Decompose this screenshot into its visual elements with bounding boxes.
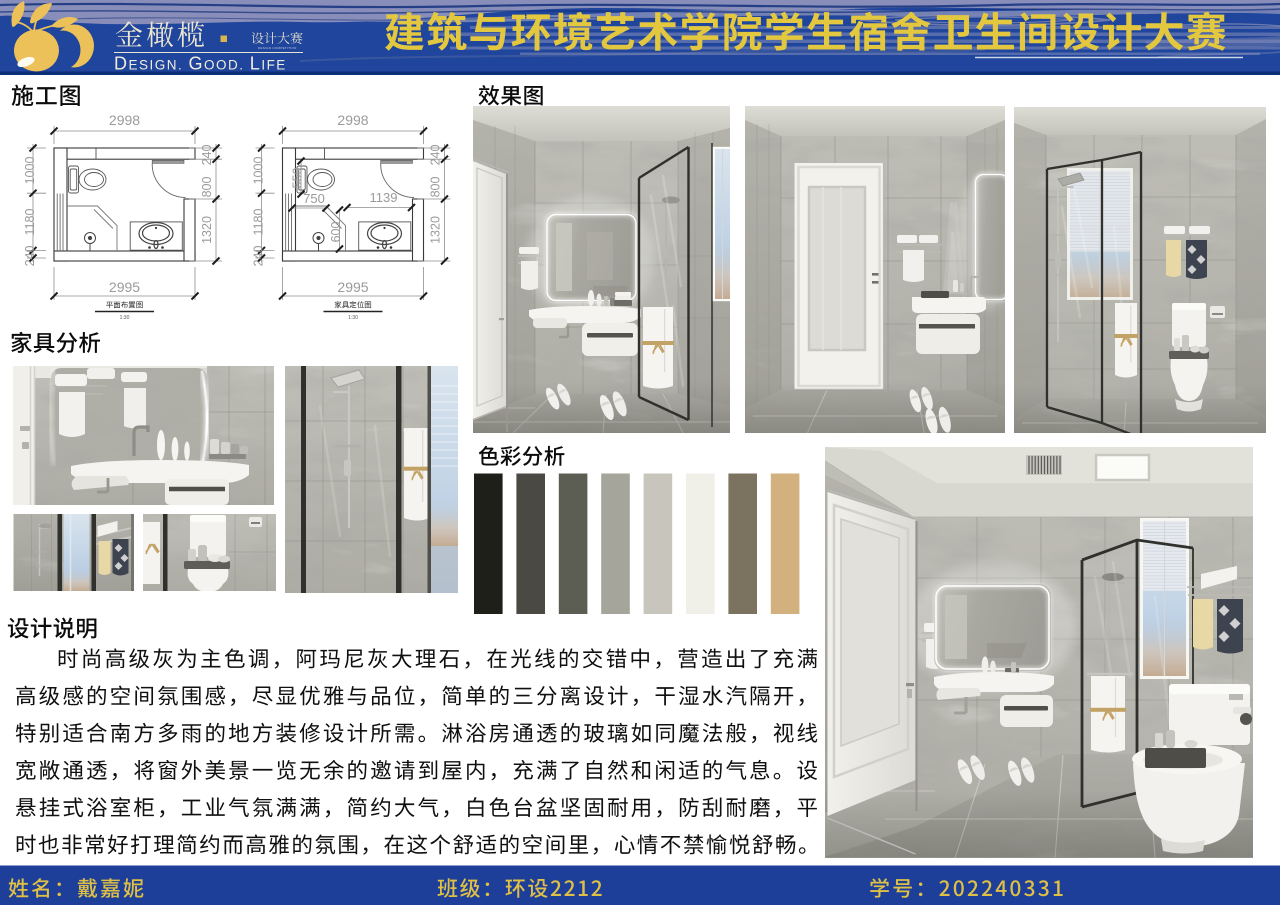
svg-text:2995: 2995 <box>109 279 140 295</box>
svg-text:1000: 1000 <box>23 157 37 185</box>
svg-text:1:30: 1:30 <box>348 315 358 321</box>
svg-text:2998: 2998 <box>337 112 368 128</box>
svg-text:240: 240 <box>252 246 266 267</box>
svg-text:1180: 1180 <box>252 209 266 236</box>
svg-text:1320: 1320 <box>429 216 443 244</box>
svg-text:240: 240 <box>429 145 443 166</box>
svg-text:800: 800 <box>429 177 443 198</box>
svg-text:240: 240 <box>200 145 214 166</box>
svg-text:750: 750 <box>303 191 325 206</box>
svg-text:600: 600 <box>329 222 343 243</box>
svg-text:800: 800 <box>200 177 214 198</box>
svg-text:1180: 1180 <box>23 209 37 236</box>
svg-text:550: 550 <box>291 168 305 189</box>
svg-text:240: 240 <box>23 246 37 267</box>
svg-text:2998: 2998 <box>109 112 140 128</box>
svg-text:2995: 2995 <box>337 279 368 295</box>
svg-text:DESIGN COMPETITION: DESIGN COMPETITION <box>258 46 297 50</box>
svg-text:1320: 1320 <box>200 216 214 244</box>
svg-text:1:30: 1:30 <box>120 315 130 321</box>
svg-text:1139: 1139 <box>370 190 398 205</box>
svg-text:1000: 1000 <box>252 157 266 185</box>
